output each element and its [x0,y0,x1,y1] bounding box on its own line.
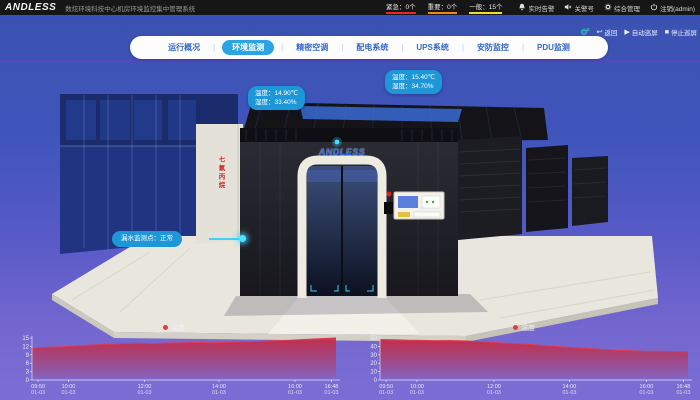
y-tick-label: 30 [370,353,377,359]
auto-patrol-button[interactable]: ▶ 自动巡屏 [624,27,657,37]
leak-sensor-dot[interactable] [239,235,246,242]
y-tick-label: 10 [370,370,377,376]
y-tick-label: 9 [26,353,30,359]
humidity-legend[interactable]: 湿度 [352,322,696,333]
x-tick-date: 01-03 [410,390,424,396]
nav-tab[interactable]: 配电系统 [350,40,394,55]
mute-alarm-button[interactable]: 关警号 [564,3,594,13]
back-label: 返回 [604,27,617,37]
nav-tab[interactable]: 安防监控 [471,40,515,55]
alarm-stat-general[interactable]: 一般：15个 [469,1,502,14]
tab-divider: | [522,43,524,52]
nav-tab-bar: 运行概况|环境监测|精密空调|配电系统|UPS系统|安防监控|PDU监测 [130,36,608,59]
legend-label: 温度 [171,323,185,333]
y-tick-label: 3 [26,370,30,376]
nav-tab[interactable]: 精密空调 [290,40,334,55]
legend-dot [513,325,518,330]
series-area [32,338,336,380]
y-tick-label: 15 [22,336,29,342]
wall-control-screen[interactable] [394,192,444,219]
x-tick-date: 01-03 [324,390,338,396]
system-title: 数炫环境科技中心机房环境监控集中管理系统 [65,3,195,13]
tab-divider: | [401,43,403,52]
leak-label: 漏水监测点： [121,235,160,242]
return-arrow-icon: ↩ [597,29,603,36]
hum-label: 湿度： [392,83,412,90]
y-tick-label: 20 [370,361,377,367]
y-tick-label: 40 [370,344,377,350]
humidity-plot: 0102030405009:5001-0310:0001-0312:0001-0… [352,333,696,397]
x-tick-date: 01-03 [487,390,501,396]
bell-icon [518,3,526,13]
temp-value: 14.90℃ [275,90,299,97]
toolbar-settings-button[interactable] [580,27,590,37]
hum-value: 34.70% [412,83,434,90]
gear-icon [604,3,612,13]
management-button-label: 综合管理 [614,3,640,13]
tab-divider: | [462,43,464,52]
fire-suppression-label: 七氟丙烷 [215,156,225,190]
nav-tab[interactable]: PDU监测 [531,40,576,55]
realtime-alarm-button[interactable]: 实时告警 [518,3,554,13]
series-area [380,340,688,381]
speaker-icon [564,3,572,13]
x-tick-date: 01-03 [212,390,226,396]
temp-label: 温度： [255,90,275,97]
container-brand-label: ANDLESS [299,147,385,157]
stop-patrol-button[interactable]: ■ 停止巡屏 [665,27,697,37]
logout-button[interactable]: 注销(admin) [650,3,695,13]
sensor-tooltip-right: 温度：15.40℃ 湿度：34.70% [385,70,442,94]
management-button[interactable]: 综合管理 [604,3,640,13]
alarm-stats: 紧急：0个重要：0个一般：15个 [386,1,502,14]
power-icon [650,3,658,13]
tab-divider: | [281,43,283,52]
legend-label: 湿度 [521,323,535,333]
tab-divider: | [341,43,343,52]
y-tick-label: 0 [374,378,378,384]
alarm-stat-critical[interactable]: 紧急：0个 [386,1,416,14]
stop-patrol-label: 停止巡屏 [671,27,697,37]
legend-dot [163,325,168,330]
mute-alarm-button-label: 关警号 [574,3,594,13]
y-tick-label: 0 [26,378,30,384]
gears-icon [580,27,590,37]
x-tick-date: 01-03 [639,390,653,396]
y-tick-label: 6 [26,361,30,367]
leak-status: 正常 [160,235,173,242]
topbar-accent-strip [0,15,700,17]
nav-tab[interactable]: UPS系统 [410,40,454,55]
sliding-door[interactable] [302,160,393,298]
sensor-tooltip-left: 温度：14.90℃ 湿度：33.40% [248,86,305,110]
topbar-actions: 实时告警关警号综合管理注销(admin) [518,3,695,13]
nav-tab[interactable]: 运行概况 [162,40,206,55]
y-tick-label: 12 [22,344,29,350]
x-tick-date: 01-03 [288,390,302,396]
stop-icon: ■ [665,29,669,36]
leak-leader-line [209,238,242,240]
equipment-cabinets[interactable] [458,136,608,240]
temperature-plot: 0369121509:5001-0310:0001-0312:0001-0314… [4,333,344,397]
x-tick-date: 01-03 [61,390,75,396]
x-tick-date: 01-03 [562,390,576,396]
temp-value: 15.40℃ [412,74,436,81]
door-alarm-lamp [387,192,392,197]
x-tick-date: 01-03 [676,390,690,396]
hum-value: 33.40% [275,99,297,106]
x-tick-date: 01-03 [31,390,45,396]
x-tick-date: 01-03 [379,390,393,396]
humidity-chart: 湿度 0102030405009:5001-0310:0001-0312:000… [352,322,696,397]
temperature-legend[interactable]: 温度 [4,322,344,333]
temperature-chart: 温度 0369121509:5001-0310:0001-0312:0001-0… [4,322,344,397]
top-bar: ANDLESS 数炫环境科技中心机房环境监控集中管理系统 紧急：0个重要：0个一… [0,0,700,15]
brand-logo: ANDLESS [5,2,56,13]
hum-label: 湿度： [255,99,275,106]
nav-divider-line [0,60,700,62]
auto-patrol-label: 自动巡屏 [632,27,658,37]
play-icon: ▶ [624,29,629,36]
realtime-alarm-button-label: 实时告警 [528,3,554,13]
leak-detection-tooltip: 漏水监测点：正常 [112,231,182,247]
monitoring-dashboard: { "topbar": { "logo": "ANDLESS", "title"… [0,0,700,400]
nav-tab[interactable]: 环境监测 [222,40,274,55]
view-toolbar: ↩ 返回 ▶ 自动巡屏 ■ 停止巡屏 [580,27,698,37]
tab-divider: | [213,43,215,52]
camera-status-light [332,137,342,147]
logout-button-label: 注销(admin) [660,3,695,13]
temp-label: 温度： [392,74,412,81]
y-tick-label: 50 [370,336,377,342]
alarm-stat-major[interactable]: 重要：0个 [428,1,458,14]
door-access-panel[interactable] [384,202,393,214]
x-tick-date: 01-03 [137,390,151,396]
back-button[interactable]: ↩ 返回 [597,27,618,37]
